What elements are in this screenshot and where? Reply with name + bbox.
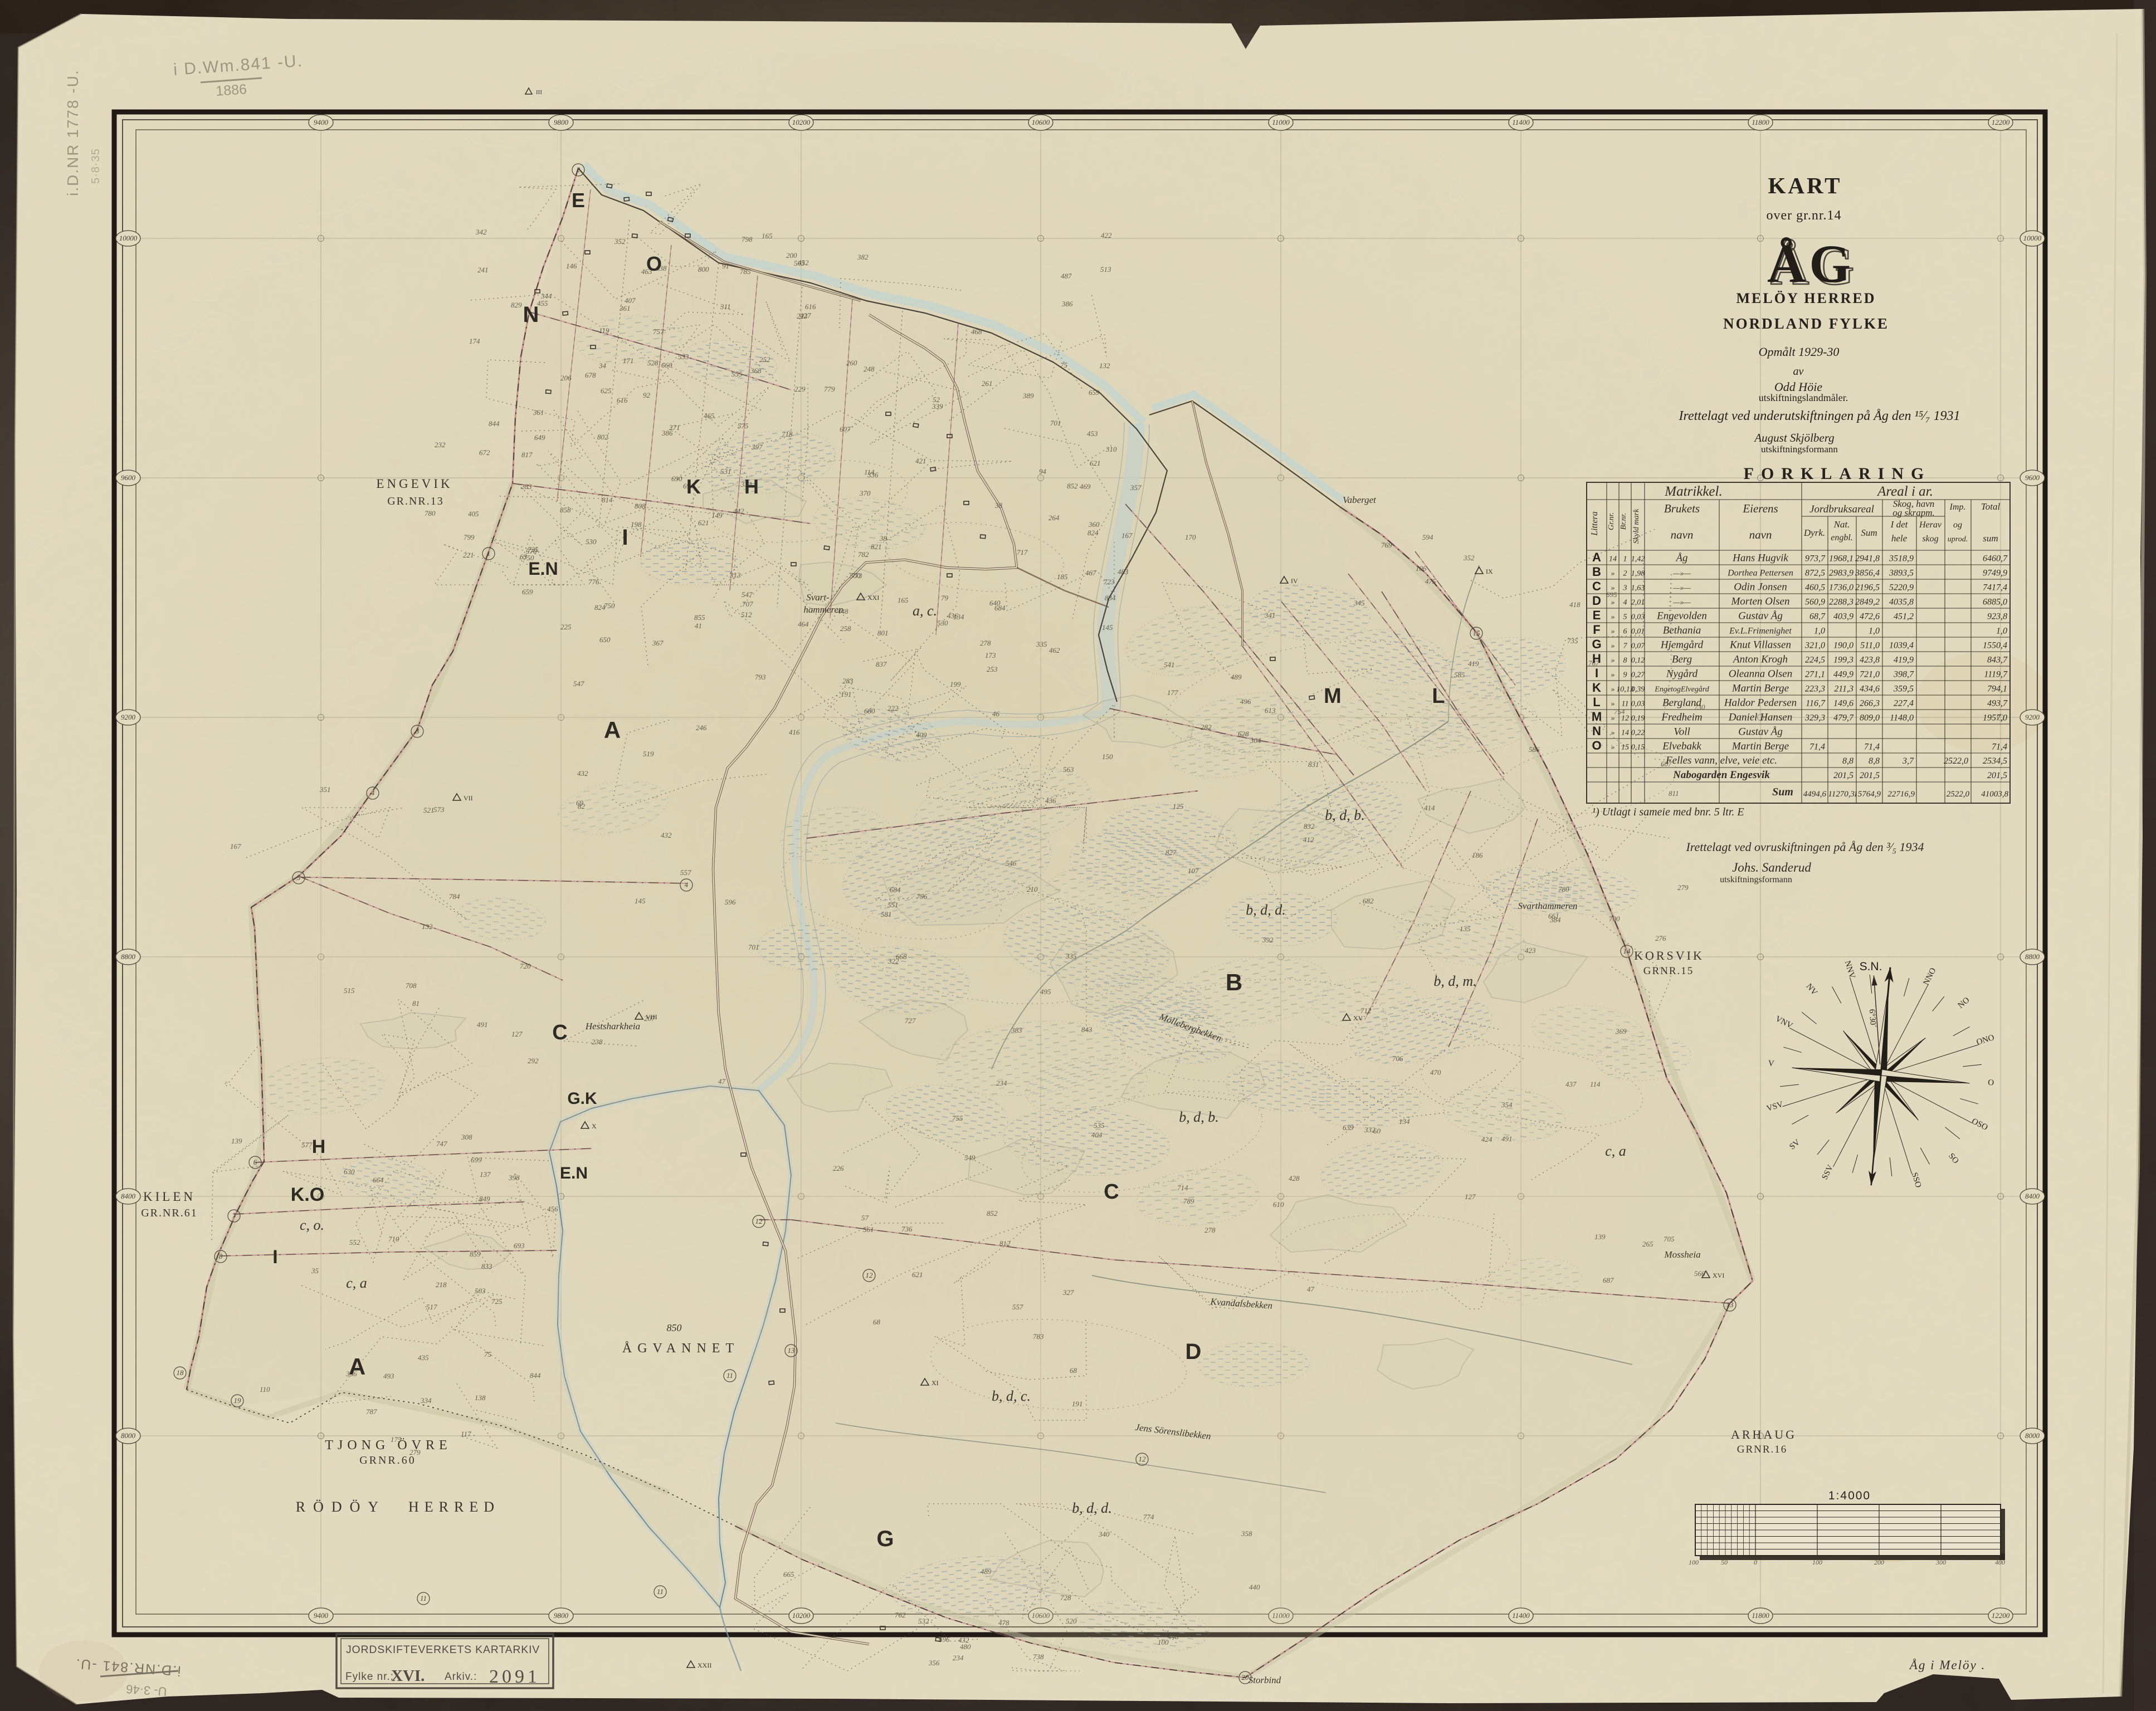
svg-text:198: 198: [631, 520, 642, 529]
svg-text:HERRED: HERRED: [408, 1499, 500, 1515]
svg-text:859: 859: [470, 1250, 481, 1258]
svg-text:1,0: 1,0: [1996, 627, 2007, 636]
svg-text:468: 468: [971, 327, 982, 336]
svg-text:432: 432: [577, 769, 588, 778]
svg-text:15: 15: [1621, 744, 1629, 752]
svg-text:400: 400: [1995, 1558, 2005, 1566]
svg-text:6460,7: 6460,7: [1983, 554, 2008, 564]
svg-text:ENGEVIK: ENGEVIK: [376, 477, 452, 491]
svg-text:X: X: [592, 1122, 597, 1130]
svg-text:221: 221: [463, 551, 474, 559]
svg-text:11: 11: [726, 1371, 733, 1380]
svg-text:552: 552: [349, 1238, 360, 1246]
svg-text:12: 12: [1139, 1455, 1147, 1463]
svg-text:809,0: 809,0: [1860, 713, 1880, 723]
svg-text:665: 665: [783, 1570, 794, 1578]
svg-text:827: 827: [1165, 848, 1177, 857]
svg-text:»: »: [1611, 599, 1615, 607]
svg-text:329,3: 329,3: [1804, 713, 1825, 723]
svg-text:69: 69: [576, 799, 584, 807]
svg-text:Areal i ar.: Areal i ar.: [1876, 484, 1933, 499]
svg-text:134: 134: [953, 613, 964, 621]
svg-text:610: 610: [1273, 1200, 1284, 1209]
svg-text:94: 94: [1039, 467, 1047, 476]
svg-text:844: 844: [530, 1371, 541, 1380]
svg-text:K.O: K.O: [291, 1184, 324, 1205]
svg-text:4035,8: 4035,8: [1889, 598, 1914, 607]
svg-text:398,7: 398,7: [1893, 670, 1914, 679]
svg-text:223,3: 223,3: [1805, 685, 1825, 694]
svg-text:»: »: [1611, 700, 1615, 708]
svg-text:I: I: [1595, 666, 1598, 680]
svg-text:232: 232: [435, 441, 446, 449]
svg-text:428: 428: [1289, 1174, 1300, 1182]
svg-text:511,0: 511,0: [1860, 641, 1880, 651]
svg-text:9800: 9800: [554, 118, 569, 126]
svg-text:201,5: 201,5: [1987, 771, 2007, 780]
svg-text:727: 727: [905, 1016, 916, 1025]
svg-text:424: 424: [1481, 1135, 1492, 1143]
svg-text:6°30´: 6°30´: [1867, 1009, 1877, 1028]
svg-text:412: 412: [1303, 835, 1314, 844]
svg-text:535: 535: [1094, 1121, 1105, 1130]
svg-text:149: 149: [711, 511, 723, 520]
svg-text:I: I: [622, 525, 628, 550]
svg-text:127: 127: [1465, 1192, 1476, 1201]
svg-text:Irettelagt ved ovruskiftning: Irettelagt ved ovruskiftningen på Åg den…: [1685, 840, 1924, 854]
svg-text:Nat.: Nat.: [1833, 519, 1850, 530]
svg-text:714: 714: [1177, 1184, 1188, 1192]
svg-text:799: 799: [464, 533, 475, 541]
svg-text:821: 821: [871, 542, 882, 551]
svg-text:1:4000: 1:4000: [1828, 1489, 1871, 1502]
svg-text:728: 728: [1060, 1593, 1071, 1602]
svg-text:G: G: [1592, 637, 1601, 651]
svg-text:utskiftningslandmåler.: utskiftningslandmåler.: [1759, 392, 1848, 403]
svg-text:700: 700: [1609, 915, 1620, 923]
svg-text:218: 218: [436, 1280, 447, 1289]
svg-text:145: 145: [1102, 623, 1113, 632]
svg-text:og: og: [1953, 520, 1962, 530]
svg-text:382: 382: [857, 253, 869, 261]
svg-text:8000: 8000: [2025, 1431, 2040, 1440]
svg-text:573: 573: [433, 805, 445, 814]
svg-text:423,8: 423,8: [1860, 656, 1880, 665]
svg-text:Imp.: Imp.: [1949, 502, 1966, 512]
svg-text:738: 738: [1033, 1653, 1044, 1661]
svg-text:Hestsharkheia: Hestsharkheia: [585, 1021, 640, 1032]
svg-text:1736,0: 1736,0: [1829, 583, 1853, 593]
svg-text:660: 660: [661, 361, 672, 369]
svg-text:Svarthammeren: Svarthammeren: [1518, 901, 1577, 911]
svg-text:3893,5: 3893,5: [1889, 569, 1914, 578]
svg-text:1957,0: 1957,0: [1983, 713, 2007, 723]
svg-text:8000: 8000: [121, 1431, 136, 1440]
svg-text:1,98: 1,98: [1631, 570, 1645, 578]
svg-text:Matrikkel.: Matrikkel.: [1664, 484, 1722, 499]
svg-text:7417,4: 7417,4: [1983, 583, 2007, 593]
svg-text:0,12: 0,12: [1631, 657, 1645, 665]
svg-text:335: 335: [1036, 640, 1047, 648]
svg-text:342: 342: [475, 228, 487, 236]
svg-text:339: 339: [931, 402, 943, 410]
svg-text:Br.nr.: Br.nr.: [1620, 513, 1628, 530]
svg-text:JORDSKIFTEVERKETS KARTARKIV: JORDSKIFTEVERKETS KARTARKIV: [346, 1644, 540, 1656]
svg-text:421: 421: [915, 457, 926, 465]
svg-text:789: 789: [1183, 1197, 1194, 1205]
svg-text:423: 423: [1525, 946, 1536, 955]
svg-text:8: 8: [219, 1252, 223, 1260]
svg-text:684: 684: [890, 886, 901, 894]
svg-text:57: 57: [861, 1214, 869, 1222]
svg-text:252: 252: [759, 355, 770, 364]
svg-text:71,4: 71,4: [1992, 742, 2007, 752]
svg-text:75: 75: [484, 1350, 492, 1358]
svg-text:106: 106: [1416, 564, 1427, 573]
svg-text:138: 138: [475, 1394, 486, 1402]
svg-text:Brukets: Brukets: [1664, 502, 1700, 515]
svg-text:779: 779: [824, 385, 835, 393]
svg-text:22716,9: 22716,9: [1887, 790, 1915, 799]
svg-text:226: 226: [833, 1164, 844, 1172]
svg-text:75: 75: [1060, 361, 1068, 369]
svg-text:276: 276: [1655, 934, 1666, 942]
svg-text:253: 253: [987, 665, 998, 673]
svg-text:440: 440: [1249, 1583, 1260, 1591]
svg-text:Berg: Berg: [1672, 654, 1692, 666]
svg-text:68,7: 68,7: [1809, 612, 1826, 622]
svg-text:B: B: [1592, 565, 1601, 579]
svg-text:132: 132: [422, 922, 433, 931]
svg-text:0,07: 0,07: [1631, 642, 1646, 651]
svg-text:63: 63: [520, 553, 528, 561]
svg-text:682: 682: [1363, 897, 1374, 905]
svg-text:707: 707: [742, 600, 753, 608]
svg-text:18: 18: [177, 1368, 184, 1377]
svg-text:201,5: 201,5: [1833, 771, 1853, 780]
svg-text:769: 769: [1381, 541, 1392, 549]
svg-text:359,5: 359,5: [1893, 685, 1914, 694]
svg-text:Sum: Sum: [1861, 527, 1877, 538]
svg-text:613: 613: [1265, 706, 1276, 715]
svg-text:sum: sum: [1983, 533, 1998, 544]
svg-text:7: 7: [232, 1211, 236, 1220]
svg-text:9749,9: 9749,9: [1983, 569, 2007, 578]
svg-text:834: 834: [1105, 594, 1116, 602]
svg-text:453: 453: [1087, 429, 1098, 438]
svg-text:547: 547: [573, 679, 584, 688]
svg-text:398: 398: [508, 1174, 520, 1182]
svg-text:706: 706: [1392, 1054, 1403, 1063]
svg-text:630: 630: [344, 1167, 355, 1176]
svg-text:Skyld mark: Skyld mark: [1632, 509, 1641, 544]
svg-text:357: 357: [1130, 483, 1142, 492]
svg-text:2: 2: [577, 165, 581, 174]
svg-text:493,7: 493,7: [1987, 699, 2008, 708]
svg-text:c, a: c, a: [1605, 1143, 1626, 1159]
svg-text:»: »: [1611, 570, 1615, 578]
svg-text:127: 127: [511, 1030, 523, 1038]
svg-text:Martin Berge: Martin Berge: [1731, 683, 1789, 695]
svg-text:416: 416: [789, 728, 800, 736]
svg-text:796: 796: [916, 892, 928, 901]
svg-text:2522,0: 2522,0: [1944, 756, 1968, 766]
svg-text:0,39: 0,39: [1631, 686, 1645, 694]
svg-text:2: 2: [1623, 570, 1627, 578]
svg-text:107: 107: [1188, 867, 1199, 875]
svg-text:13: 13: [1726, 1301, 1734, 1309]
svg-text:Nygård: Nygård: [1666, 668, 1698, 680]
svg-text:7: 7: [1623, 642, 1628, 651]
svg-text:0,15: 0,15: [1631, 744, 1645, 752]
svg-text:9400: 9400: [314, 118, 329, 126]
svg-text:512: 512: [741, 610, 752, 619]
svg-text:III: III: [536, 89, 542, 96]
svg-text:773: 773: [851, 571, 862, 580]
svg-text:GR.NR.61: GR.NR.61: [141, 1207, 198, 1219]
svg-text:11800: 11800: [1752, 118, 1769, 126]
svg-text:238: 238: [592, 1038, 603, 1046]
svg-text:336: 336: [867, 471, 879, 479]
svg-text:135: 135: [1460, 925, 1471, 933]
svg-text:437: 437: [1565, 1080, 1577, 1088]
svg-text:Jordbruksareal: Jordbruksareal: [1809, 503, 1874, 515]
svg-text:2941,8: 2941,8: [1855, 554, 1880, 564]
svg-text:397: 397: [751, 443, 763, 451]
svg-text:335: 335: [1065, 952, 1077, 960]
svg-text:116,7: 116,7: [1806, 699, 1826, 708]
svg-text:Arkiv.:: Arkiv.:: [445, 1671, 477, 1683]
svg-text:O: O: [1987, 1078, 1994, 1088]
svg-text:699: 699: [471, 1156, 482, 1164]
svg-text:12: 12: [1621, 715, 1629, 723]
svg-text:¹⁠) Utlagt i sameie med bnr.: ¹⁠) Utlagt i sameie med bnr. 5 ltr. E: [1592, 806, 1744, 818]
svg-text:2091: 2091: [489, 1666, 540, 1687]
svg-text:ARHAUG: ARHAUG: [1731, 1428, 1797, 1441]
svg-text:1148,0: 1148,0: [1890, 713, 1914, 723]
svg-text:71,4: 71,4: [1809, 742, 1825, 752]
svg-text:352: 352: [1463, 554, 1475, 562]
svg-text:119: 119: [599, 326, 609, 335]
svg-text:Gustav Åg: Gustav Åg: [1738, 726, 1783, 738]
svg-text:GRNR.60: GRNR.60: [359, 1454, 416, 1466]
svg-text:451,2: 451,2: [1894, 612, 1914, 622]
svg-text:517: 517: [426, 1303, 437, 1311]
svg-text:723: 723: [1104, 578, 1115, 586]
svg-text:278: 278: [980, 639, 991, 647]
svg-text:19: 19: [234, 1396, 242, 1405]
svg-text:9: 9: [1623, 671, 1627, 679]
svg-text:322: 322: [887, 957, 899, 965]
svg-text:386: 386: [1061, 300, 1073, 308]
svg-text:XV: XV: [1353, 1014, 1363, 1022]
svg-text:200: 200: [1874, 1558, 1884, 1566]
svg-text:GRNR.15: GRNR.15: [1643, 965, 1694, 977]
svg-text:139: 139: [231, 1137, 242, 1145]
svg-text:15764,9: 15764,9: [1853, 790, 1881, 799]
svg-text:780: 780: [425, 509, 436, 517]
svg-text:0,01: 0,01: [1631, 628, 1645, 636]
svg-text:12: 12: [866, 1271, 874, 1279]
svg-text:435: 435: [418, 1353, 429, 1362]
svg-text:L: L: [1593, 695, 1600, 709]
svg-text:361: 361: [533, 408, 544, 417]
svg-text:596: 596: [725, 898, 736, 906]
svg-text:265: 265: [1642, 1240, 1653, 1248]
svg-text:279: 279: [1677, 883, 1689, 892]
svg-text:812: 812: [999, 1239, 1011, 1248]
svg-text:311: 311: [720, 302, 731, 311]
svg-text:11400: 11400: [1512, 1611, 1530, 1620]
svg-text:449,9: 449,9: [1833, 670, 1853, 679]
svg-text:0,22: 0,22: [1631, 729, 1645, 737]
svg-text:844: 844: [489, 419, 500, 428]
svg-text:August Skjölberg: August Skjölberg: [1753, 431, 1834, 444]
svg-text:850: 850: [667, 1322, 682, 1333]
svg-text:92: 92: [643, 391, 651, 399]
svg-text:1119,7: 1119,7: [1984, 670, 2008, 679]
svg-text:100: 100: [1689, 1558, 1699, 1566]
svg-text:173: 173: [985, 651, 996, 659]
svg-text:MELÖY HERRED: MELÖY HERRED: [1736, 290, 1876, 306]
svg-text:139: 139: [1594, 1233, 1606, 1241]
svg-text:Dorthea Pettersen: Dorthea Pettersen: [1727, 569, 1793, 578]
svg-text:783: 783: [1033, 1332, 1044, 1341]
svg-text:460,5: 460,5: [1805, 583, 1825, 593]
svg-text:586: 586: [1529, 745, 1540, 754]
svg-text:EngetogElvegård: EngetogElvegård: [1654, 686, 1709, 694]
svg-text:661: 661: [1548, 912, 1559, 920]
svg-text:8400: 8400: [121, 1192, 136, 1200]
svg-text:720: 720: [520, 962, 531, 970]
svg-text:801: 801: [877, 629, 889, 637]
svg-text:Storbind: Storbind: [1248, 1675, 1281, 1685]
svg-text:489: 489: [981, 1567, 992, 1576]
svg-text:843: 843: [1081, 1025, 1092, 1034]
svg-text:282: 282: [1201, 723, 1212, 731]
svg-text:navn: navn: [1749, 528, 1772, 541]
svg-text:261: 261: [982, 379, 993, 388]
svg-text:222: 222: [887, 704, 899, 712]
svg-text:Littera: Littera: [1590, 511, 1599, 536]
svg-text:79: 79: [941, 594, 949, 602]
svg-text:150: 150: [1102, 752, 1113, 761]
svg-text:38: 38: [879, 534, 887, 542]
svg-text:I det: I det: [1890, 519, 1909, 530]
svg-text:546: 546: [1006, 859, 1017, 867]
svg-text:361: 361: [619, 304, 631, 312]
svg-text:S.N.: S.N.: [1860, 960, 1882, 973]
svg-text:354: 354: [1501, 1101, 1513, 1109]
svg-text:800: 800: [698, 265, 709, 273]
svg-text:808: 808: [635, 502, 646, 510]
svg-text:Voll: Voll: [1674, 726, 1690, 738]
svg-text:9200: 9200: [121, 713, 136, 721]
svg-text:292: 292: [528, 1057, 539, 1065]
svg-text:817: 817: [521, 451, 533, 459]
svg-text:Knut Villassen: Knut Villassen: [1729, 639, 1791, 651]
svg-text:3,7: 3,7: [1902, 756, 1914, 766]
svg-text:9800: 9800: [554, 1611, 569, 1620]
svg-text:547: 547: [742, 590, 753, 599]
svg-text:872,5: 872,5: [1805, 569, 1825, 578]
svg-text:199,3: 199,3: [1833, 656, 1853, 665]
svg-text:432: 432: [661, 831, 672, 839]
svg-text:Martin Berge: Martin Berge: [1731, 741, 1789, 752]
svg-text:639: 639: [1343, 1123, 1354, 1132]
svg-text:1039,4: 1039,4: [1889, 641, 1914, 651]
svg-text:607: 607: [840, 425, 851, 433]
svg-text:621: 621: [698, 519, 709, 527]
svg-text:594: 594: [1422, 533, 1433, 541]
svg-text:340: 340: [1098, 1530, 1110, 1538]
svg-text:2,01: 2,01: [1631, 599, 1645, 607]
svg-text:Åg: Åg: [1675, 553, 1687, 564]
svg-text:530: 530: [937, 619, 948, 627]
svg-text:3856,4: 3856,4: [1855, 569, 1880, 578]
svg-text:D: D: [1592, 594, 1601, 608]
svg-text:Vaberget: Vaberget: [1343, 495, 1377, 505]
svg-text:0,27: 0,27: [1631, 671, 1646, 679]
svg-text:628: 628: [1238, 730, 1249, 738]
svg-text:navn: navn: [1671, 528, 1694, 541]
svg-text:824: 824: [594, 603, 606, 612]
svg-text:15: 15: [1473, 629, 1481, 637]
svg-text:6885,0: 6885,0: [1983, 598, 2007, 607]
svg-text:616: 616: [617, 396, 628, 404]
svg-text:Gustav Åg: Gustav Åg: [1738, 610, 1783, 622]
svg-text:973,7: 973,7: [1805, 554, 1826, 564]
svg-text:389: 389: [1022, 392, 1034, 400]
svg-text:191: 191: [1072, 1400, 1083, 1408]
svg-text:520: 520: [1066, 1617, 1077, 1625]
svg-text:8800: 8800: [121, 952, 136, 961]
svg-text:4494,6: 4494,6: [1803, 790, 1827, 799]
svg-text:718: 718: [782, 430, 793, 438]
svg-text:VIII: VIII: [646, 1013, 657, 1021]
svg-text:356: 356: [928, 1659, 940, 1667]
svg-text:462: 462: [1049, 646, 1060, 654]
svg-text:1,0: 1,0: [1814, 627, 1825, 636]
svg-text:A: A: [604, 717, 621, 743]
svg-text:200: 200: [786, 251, 797, 260]
svg-text:248: 248: [864, 365, 875, 373]
svg-text:13: 13: [788, 1346, 796, 1355]
svg-text:755: 755: [952, 1114, 963, 1122]
svg-text:2849,2: 2849,2: [1855, 598, 1880, 607]
svg-text:491: 491: [477, 1020, 488, 1029]
svg-text:456: 456: [547, 1205, 558, 1213]
svg-text:Elvebakk: Elvebakk: [1662, 741, 1701, 752]
svg-text:og skrapm.: og skrapm.: [1892, 507, 1935, 518]
svg-text:271,1: 271,1: [1805, 670, 1825, 679]
svg-text:Sum: Sum: [1772, 786, 1793, 798]
svg-text:672: 672: [479, 448, 490, 457]
svg-text:680: 680: [864, 707, 875, 715]
svg-text:855: 855: [694, 613, 705, 622]
svg-text:493: 493: [383, 1372, 394, 1380]
svg-text:852: 852: [1067, 482, 1078, 490]
svg-text:541: 541: [1164, 661, 1175, 669]
svg-text:2196,5: 2196,5: [1855, 583, 1880, 593]
svg-text:L: L: [1432, 685, 1445, 708]
svg-text:519: 519: [643, 750, 654, 758]
svg-text:b, d, d.: b, d, d.: [1246, 902, 1286, 918]
svg-text:K: K: [686, 475, 701, 498]
svg-text:50: 50: [1721, 1558, 1728, 1566]
svg-text:KILEN: KILEN: [143, 1190, 196, 1204]
svg-text:V: V: [1768, 1059, 1774, 1068]
